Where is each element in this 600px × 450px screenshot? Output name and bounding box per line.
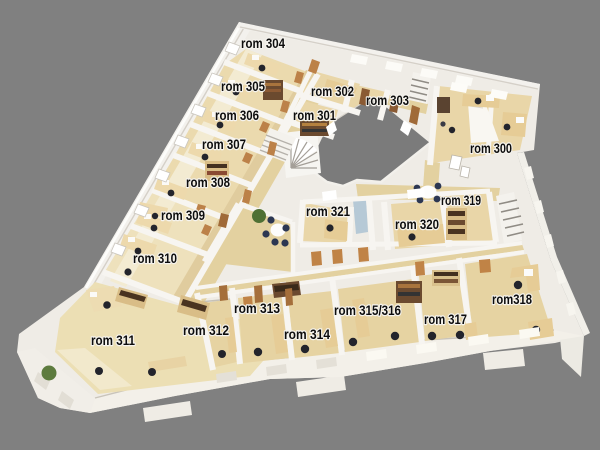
svg-text:rom 315/316: rom 315/316 — [334, 303, 401, 318]
svg-text:rom 317: rom 317 — [424, 312, 467, 327]
svg-text:rom318: rom318 — [492, 292, 532, 307]
svg-text:rom 310: rom 310 — [133, 251, 177, 266]
svg-text:rom 303: rom 303 — [366, 93, 409, 108]
svg-text:rom 319: rom 319 — [441, 193, 481, 208]
svg-text:rom 320: rom 320 — [395, 217, 439, 232]
svg-text:rom 309: rom 309 — [161, 208, 205, 223]
svg-text:rom 306: rom 306 — [215, 108, 259, 123]
svg-text:rom 304: rom 304 — [241, 36, 285, 51]
svg-text:rom 300: rom 300 — [470, 141, 512, 156]
svg-text:rom 301: rom 301 — [293, 108, 336, 123]
svg-text:rom 307: rom 307 — [202, 137, 246, 152]
svg-text:rom 302: rom 302 — [311, 84, 354, 99]
svg-text:rom 314: rom 314 — [284, 327, 330, 342]
svg-text:rom 312: rom 312 — [183, 323, 229, 338]
svg-text:rom 313: rom 313 — [234, 301, 280, 316]
svg-text:rom 311: rom 311 — [91, 333, 135, 348]
svg-text:rom 321: rom 321 — [306, 204, 350, 219]
svg-text:rom 305: rom 305 — [221, 79, 265, 94]
svg-text:rom 308: rom 308 — [186, 175, 230, 190]
